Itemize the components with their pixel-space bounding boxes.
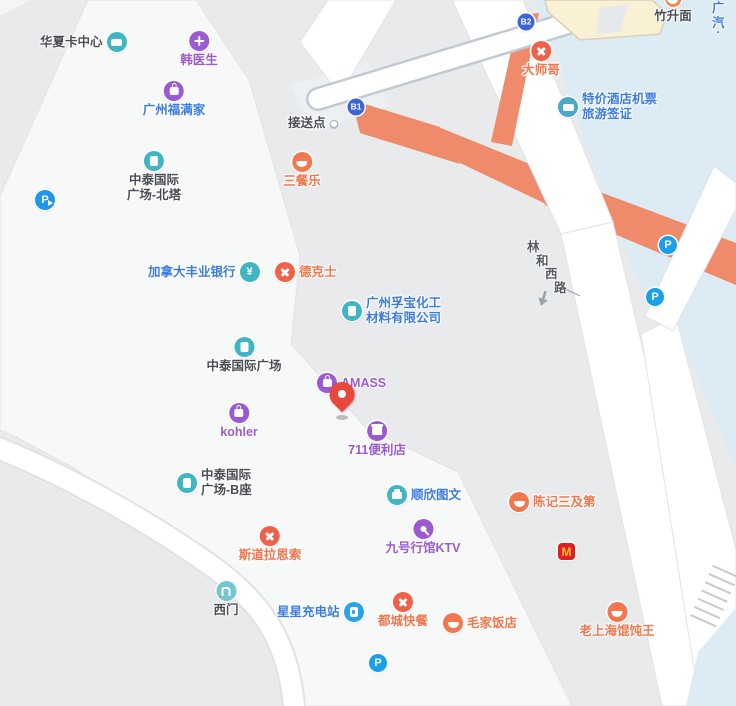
gate-icon bbox=[216, 581, 236, 601]
parking-icon[interactable]: P bbox=[659, 236, 677, 254]
poi-sancanle[interactable]: 三餐乐 bbox=[283, 152, 321, 189]
poi-west-gate[interactable]: 西门 bbox=[213, 581, 238, 618]
poi-kohler[interactable]: kohler bbox=[220, 403, 258, 440]
poi-fubao-chemical[interactable]: 广州孚宝化工材料有限公司 bbox=[342, 296, 441, 326]
utensils-icon bbox=[275, 262, 295, 282]
shopping-bag-icon bbox=[229, 403, 249, 423]
road-label-linhexilu: 林 和 西 路 bbox=[527, 236, 567, 290]
medical-icon bbox=[189, 31, 209, 51]
bowl-icon bbox=[607, 602, 627, 622]
bowl-icon bbox=[665, 0, 681, 7]
mcdonalds-icon: M bbox=[562, 546, 572, 558]
poi-ducheng-fastfood[interactable]: 都城快餐 bbox=[378, 592, 428, 629]
poi-711-store[interactable]: 711便利店 bbox=[348, 421, 406, 458]
poi-huaxia-card-center[interactable]: 华夏卡中心 bbox=[40, 32, 127, 52]
bowl-icon bbox=[443, 613, 463, 633]
poi-pickup-point[interactable]: 接送点 bbox=[288, 116, 338, 131]
poi-zhongtai-tower-b[interactable]: 中泰国际广场-B座 bbox=[177, 468, 252, 498]
charger-icon bbox=[344, 602, 364, 622]
poi-wonton-king[interactable]: 老上海馄饨王 bbox=[579, 602, 654, 639]
poi-stora-enso[interactable]: 斯道拉恩索 bbox=[239, 526, 302, 563]
poi-dicos[interactable]: 德克士 bbox=[275, 262, 337, 282]
store-icon bbox=[367, 421, 387, 441]
poi-star-charging[interactable]: 星星充电站 bbox=[277, 602, 364, 622]
yen-bank-icon: ¥ bbox=[240, 262, 260, 282]
printer-icon bbox=[387, 485, 407, 505]
poi-ktv-no9[interactable]: 九号行馆KTV bbox=[385, 519, 460, 556]
parking-icon[interactable]: P bbox=[369, 654, 387, 672]
building-icon bbox=[177, 473, 197, 493]
pickup-dot-icon bbox=[330, 120, 338, 128]
poi-zhushengmian[interactable]: 竹升面 bbox=[654, 0, 692, 24]
parking-entrance-icon[interactable]: P bbox=[35, 190, 55, 210]
pin-hole bbox=[338, 390, 346, 398]
bowl-icon bbox=[292, 152, 312, 172]
poi-zhongtai-north-tower[interactable]: 中泰国际广场-北塔 bbox=[127, 151, 181, 203]
arrow-right-icon bbox=[48, 200, 53, 206]
utensils-icon bbox=[393, 592, 413, 612]
destination-pin[interactable] bbox=[327, 380, 357, 420]
microphone-icon bbox=[413, 519, 433, 539]
pin-shadow bbox=[336, 415, 348, 420]
poi-zhongtai-plaza[interactable]: 中泰国际广场 bbox=[206, 337, 281, 374]
poi-han-doctor[interactable]: 韩医生 bbox=[180, 31, 218, 68]
map-canvas[interactable]: 华夏卡中心 韩医生 广州福满家 中泰国际广场-北塔 加拿大丰业银行 ¥ 德克士 … bbox=[0, 0, 736, 706]
poi-discount-hotel-tickets[interactable]: 特价酒店机票旅游签证 bbox=[558, 92, 657, 122]
utensils-icon bbox=[260, 526, 280, 546]
bowl-icon bbox=[509, 492, 529, 512]
card-icon bbox=[107, 32, 127, 52]
ticket-icon bbox=[558, 97, 578, 117]
utensils-icon bbox=[531, 41, 551, 61]
poi-gac-auto[interactable]: 广汽自动 bbox=[712, 1, 736, 33]
parking-icon[interactable]: P bbox=[646, 288, 664, 306]
poi-mcdonalds[interactable]: M bbox=[558, 543, 575, 560]
building-icon bbox=[144, 151, 164, 171]
subway-exit-b2-badge[interactable]: B2 bbox=[518, 14, 535, 31]
poi-maojia-restaurant[interactable]: 毛家饭店 bbox=[443, 613, 517, 633]
poi-scotiabank[interactable]: 加拿大丰业银行 ¥ bbox=[148, 262, 260, 282]
subway-exit-b1-badge[interactable]: B1 bbox=[348, 99, 365, 116]
poi-shunxin-print[interactable]: 顺欣图文 bbox=[387, 485, 461, 505]
building-icon bbox=[234, 337, 254, 357]
shopping-bag-icon bbox=[164, 81, 184, 101]
building-icon bbox=[342, 301, 362, 321]
poi-fumanjia[interactable]: 广州福满家 bbox=[143, 81, 206, 118]
poi-dashige[interactable]: 大师哥 bbox=[522, 41, 560, 78]
poi-chenji-sanjidi[interactable]: 陈记三及第 bbox=[509, 492, 596, 512]
